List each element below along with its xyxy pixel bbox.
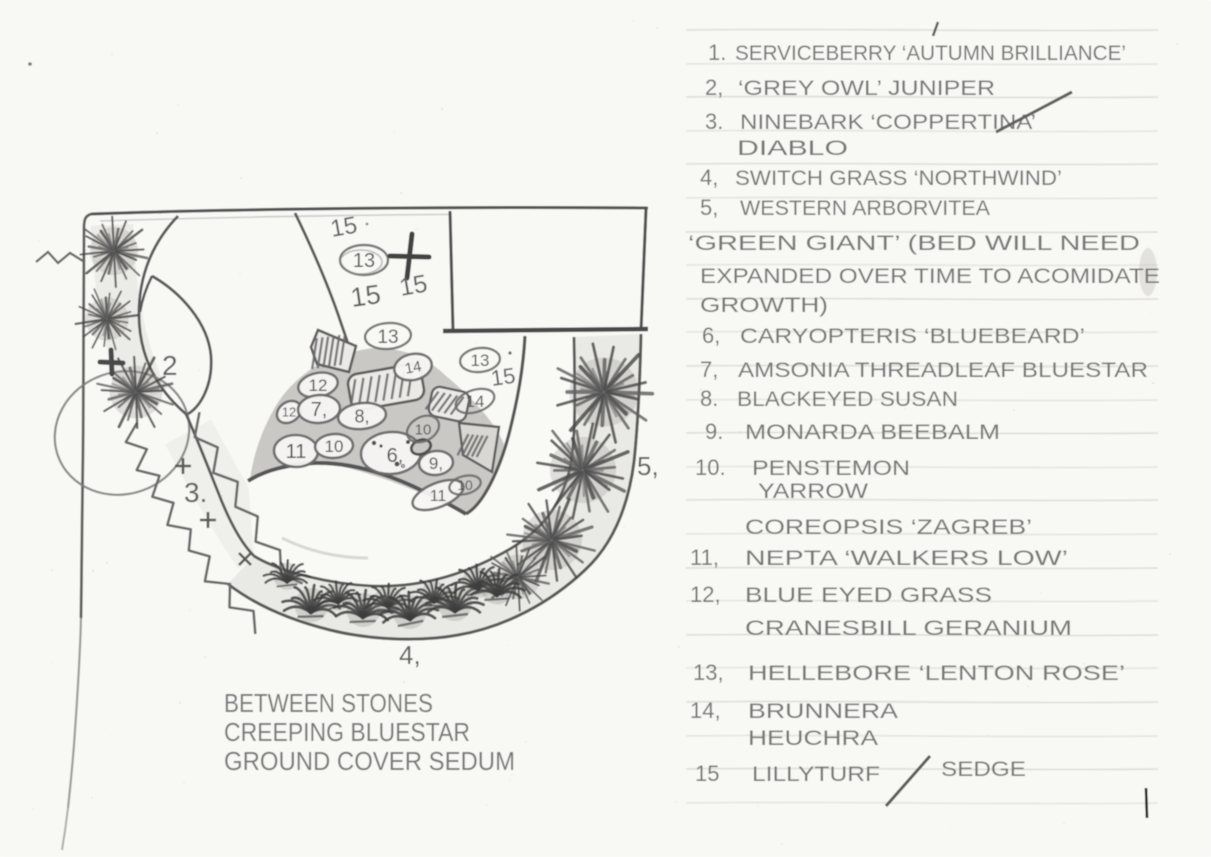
svg-text:BETWEEN STONES: BETWEEN STONES bbox=[224, 688, 433, 718]
svg-text:SEDGE: SEDGE bbox=[941, 757, 1026, 781]
svg-text:SERVICEBERRY ‘AUTUMN BRILLIANC: SERVICEBERRY ‘AUTUMN BRILLIANCE’ bbox=[735, 41, 1126, 65]
svg-text:13: 13 bbox=[353, 250, 375, 272]
svg-text:6,: 6, bbox=[702, 323, 720, 348]
svg-text:GROWTH): GROWTH) bbox=[700, 293, 828, 317]
svg-text:HELLEBORE ‘LENTON ROSE’: HELLEBORE ‘LENTON ROSE’ bbox=[748, 661, 1125, 685]
svg-text:‘GREY OWL’ JUNIPER: ‘GREY OWL’ JUNIPER bbox=[738, 76, 995, 100]
svg-text:15: 15 bbox=[349, 279, 383, 313]
svg-text:9.: 9. bbox=[705, 419, 723, 444]
svg-text:4,: 4, bbox=[700, 165, 718, 190]
svg-text:SWITCH GRASS ‘NORTHWIND’: SWITCH GRASS ‘NORTHWIND’ bbox=[735, 166, 1062, 190]
svg-text:PENSTEMON: PENSTEMON bbox=[752, 456, 910, 480]
svg-text:8.: 8. bbox=[700, 386, 718, 411]
svg-text:13,: 13, bbox=[693, 660, 724, 685]
svg-text:BLACKEYED SUSAN: BLACKEYED SUSAN bbox=[737, 387, 958, 411]
svg-text:12,: 12, bbox=[690, 582, 721, 607]
svg-text:CREEPING BLUESTAR: CREEPING BLUESTAR bbox=[224, 717, 470, 747]
svg-text:CRANESBILL GERANIUM: CRANESBILL GERANIUM bbox=[745, 616, 1072, 640]
svg-text:YARROW: YARROW bbox=[758, 479, 869, 503]
svg-text:MONARDA BEEBALM: MONARDA BEEBALM bbox=[745, 420, 1000, 444]
svg-text:15: 15 bbox=[695, 761, 719, 786]
svg-text:10: 10 bbox=[415, 421, 432, 438]
svg-text:11,: 11, bbox=[690, 545, 719, 570]
svg-text:HEUCHRA: HEUCHRA bbox=[748, 726, 879, 750]
svg-text:5,: 5, bbox=[637, 451, 659, 481]
svg-text:10: 10 bbox=[325, 437, 344, 456]
svg-text:15: 15 bbox=[397, 270, 429, 302]
svg-text:15: 15 bbox=[328, 212, 359, 243]
svg-text:14: 14 bbox=[466, 392, 485, 411]
svg-text:11: 11 bbox=[286, 441, 307, 463]
svg-text:10.: 10. bbox=[695, 455, 726, 480]
svg-text:14,: 14, bbox=[690, 698, 721, 723]
svg-text:9,: 9, bbox=[429, 454, 443, 473]
svg-text:‘GREEN GIANT’ (BED WILL NEED: ‘GREEN GIANT’ (BED WILL NEED bbox=[688, 231, 1140, 255]
svg-text:5,: 5, bbox=[700, 195, 718, 220]
svg-text:DIABLO: DIABLO bbox=[737, 136, 848, 160]
svg-text:15: 15 bbox=[489, 363, 517, 391]
svg-text:10: 10 bbox=[457, 477, 473, 493]
svg-text:EXPANDED OVER TIME TO ACOMIDAT: EXPANDED OVER TIME TO ACOMIDATE bbox=[700, 264, 1160, 288]
svg-text:7,: 7, bbox=[700, 357, 718, 382]
svg-text:2,: 2, bbox=[705, 75, 723, 100]
svg-text:8,: 8, bbox=[354, 406, 369, 426]
svg-text:BRUNNERA: BRUNNERA bbox=[748, 699, 899, 723]
svg-text:AMSONIA THREADLEAF BLUESTAR: AMSONIA THREADLEAF BLUESTAR bbox=[738, 358, 1148, 382]
svg-text:2: 2 bbox=[162, 350, 178, 381]
svg-text:11: 11 bbox=[430, 488, 447, 505]
svg-text:LILLYTURF: LILLYTURF bbox=[752, 762, 880, 786]
svg-text:1.: 1. bbox=[708, 40, 726, 65]
svg-text:COREOPSIS ‘ZAGREB’: COREOPSIS ‘ZAGREB’ bbox=[745, 515, 1032, 539]
svg-text:GROUND COVER SEDUM: GROUND COVER SEDUM bbox=[224, 746, 515, 776]
svg-text:7,: 7, bbox=[311, 399, 328, 421]
svg-text:3.: 3. bbox=[184, 477, 207, 508]
svg-text:3.: 3. bbox=[705, 109, 723, 134]
svg-text:12: 12 bbox=[309, 376, 328, 395]
svg-text:BLUE EYED GRASS: BLUE EYED GRASS bbox=[745, 583, 992, 607]
svg-text:14: 14 bbox=[403, 358, 422, 378]
svg-text:4,: 4, bbox=[399, 640, 421, 670]
svg-text:NEPTA ‘WALKERS LOW’: NEPTA ‘WALKERS LOW’ bbox=[745, 546, 1068, 570]
svg-text:NINEBARK ‘COPPERTINA’: NINEBARK ‘COPPERTINA’ bbox=[740, 110, 1036, 134]
svg-text:13: 13 bbox=[377, 327, 398, 348]
svg-text:CARYOPTERIS ‘BLUEBEARD’: CARYOPTERIS ‘BLUEBEARD’ bbox=[740, 324, 1085, 348]
svg-text:12: 12 bbox=[282, 405, 296, 420]
svg-text:WESTERN ARBORVITEA: WESTERN ARBORVITEA bbox=[740, 196, 991, 220]
svg-text:13: 13 bbox=[471, 351, 490, 370]
